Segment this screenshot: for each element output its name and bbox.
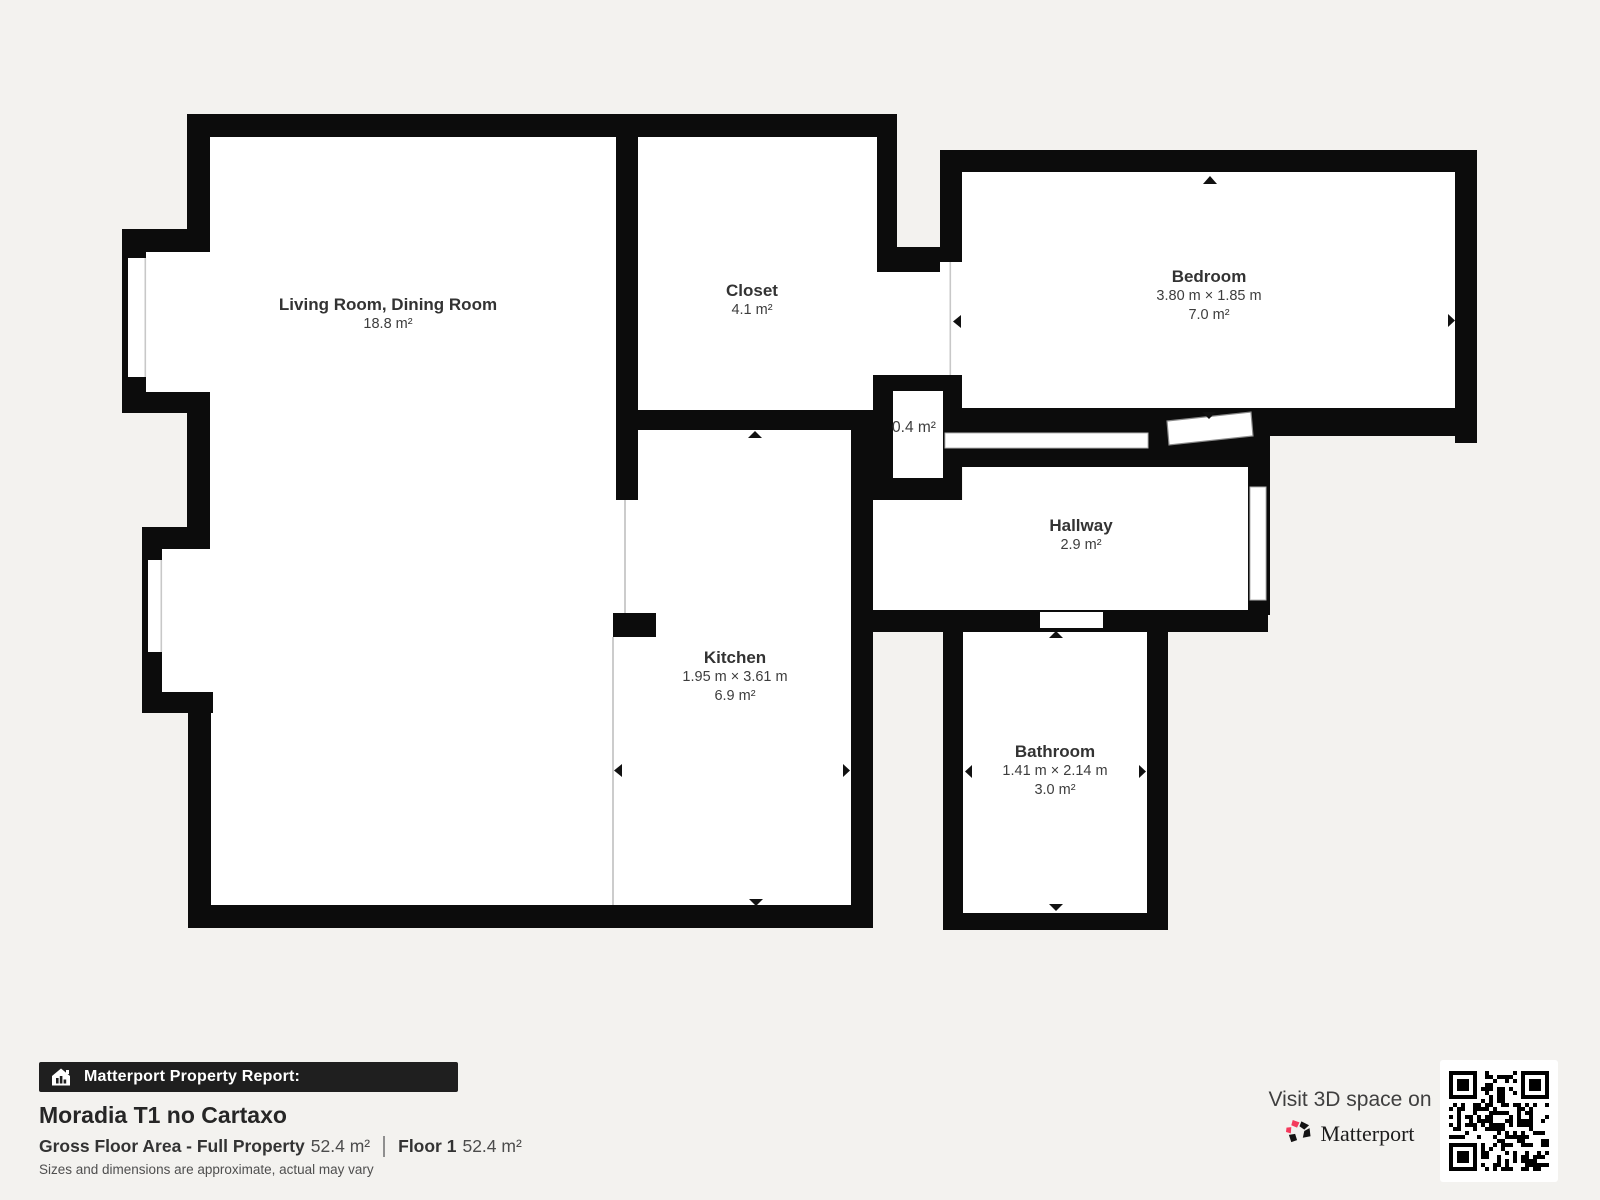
area-stats: Gross Floor Area - Full Property 52.4 m²… <box>39 1136 522 1157</box>
room-area: 4.1 m² <box>726 301 778 320</box>
room-name: Closet <box>726 281 778 301</box>
matterport-logo-icon <box>1285 1119 1312 1149</box>
room-name: Hallway <box>1049 516 1112 536</box>
house-icon <box>50 1067 72 1087</box>
room-label-closet: Closet 4.1 m² <box>726 281 778 320</box>
qr-code[interactable] <box>1440 1060 1558 1182</box>
room-area: 18.8 m² <box>279 315 497 334</box>
window <box>128 258 146 377</box>
floor-value: 52.4 m² <box>462 1136 521 1157</box>
window <box>148 560 162 652</box>
closet-floor <box>638 137 877 410</box>
room-label-small-cell: 0.4 m² <box>892 419 936 437</box>
room-name: Living Room, Dining Room <box>279 295 497 315</box>
floorplan-page: Living Room, Dining Room 18.8 m² Closet … <box>0 0 1600 1200</box>
visit-3d-text: Visit 3D space on <box>1240 1088 1460 1112</box>
divider <box>383 1136 385 1157</box>
gfa-label: Gross Floor Area - Full Property <box>39 1136 305 1157</box>
door-corridor-sliver <box>945 433 1148 448</box>
floorplan-drawing <box>0 0 1600 1200</box>
matterport-wordmark: Matterport <box>1320 1121 1414 1147</box>
room-dims: 1.41 m × 2.14 m <box>1002 762 1107 781</box>
open-boundary-floor <box>616 500 638 905</box>
room-area: 7.0 m² <box>1156 306 1261 325</box>
gfa-value: 52.4 m² <box>311 1136 370 1157</box>
report-bar: Matterport Property Report: <box>39 1062 458 1092</box>
room-area: 3.0 m² <box>1002 781 1107 800</box>
room-name: Kitchen <box>682 648 787 668</box>
room-area: 2.9 m² <box>1049 536 1112 555</box>
disclaimer-text: Sizes and dimensions are approximate, ac… <box>39 1162 374 1177</box>
hallway-window <box>1250 487 1266 600</box>
property-name: Moradia T1 no Cartaxo <box>39 1102 287 1129</box>
living-room-window-bay1-floor <box>146 252 210 392</box>
room-area: 6.9 m² <box>682 687 787 706</box>
room-label-living-room: Living Room, Dining Room 18.8 m² <box>279 295 497 334</box>
bathroom-door-gap <box>1040 612 1103 628</box>
room-dims: 3.80 m × 1.85 m <box>1156 287 1261 306</box>
room-dims: 1.95 m × 3.61 m <box>682 668 787 687</box>
visit-3d-block: Visit 3D space on Matterport <box>1240 1088 1460 1149</box>
room-label-kitchen: Kitchen 1.95 m × 3.61 m 6.9 m² <box>682 648 787 706</box>
room-label-bedroom: Bedroom 3.80 m × 1.85 m 7.0 m² <box>1156 267 1261 325</box>
room-label-bathroom: Bathroom 1.41 m × 2.14 m 3.0 m² <box>1002 742 1107 800</box>
report-bar-title: Matterport Property Report: <box>84 1068 300 1086</box>
floor-label: Floor 1 <box>398 1136 456 1157</box>
room-label-hallway: Hallway 2.9 m² <box>1049 516 1112 555</box>
corridor-floor <box>873 500 963 610</box>
room-name: Bedroom <box>1156 267 1261 287</box>
living-room-window-bay2-floor <box>162 549 210 692</box>
matterport-brand[interactable]: Matterport <box>1240 1119 1460 1149</box>
living-room-floor <box>210 137 616 905</box>
room-name: Bathroom <box>1002 742 1107 762</box>
